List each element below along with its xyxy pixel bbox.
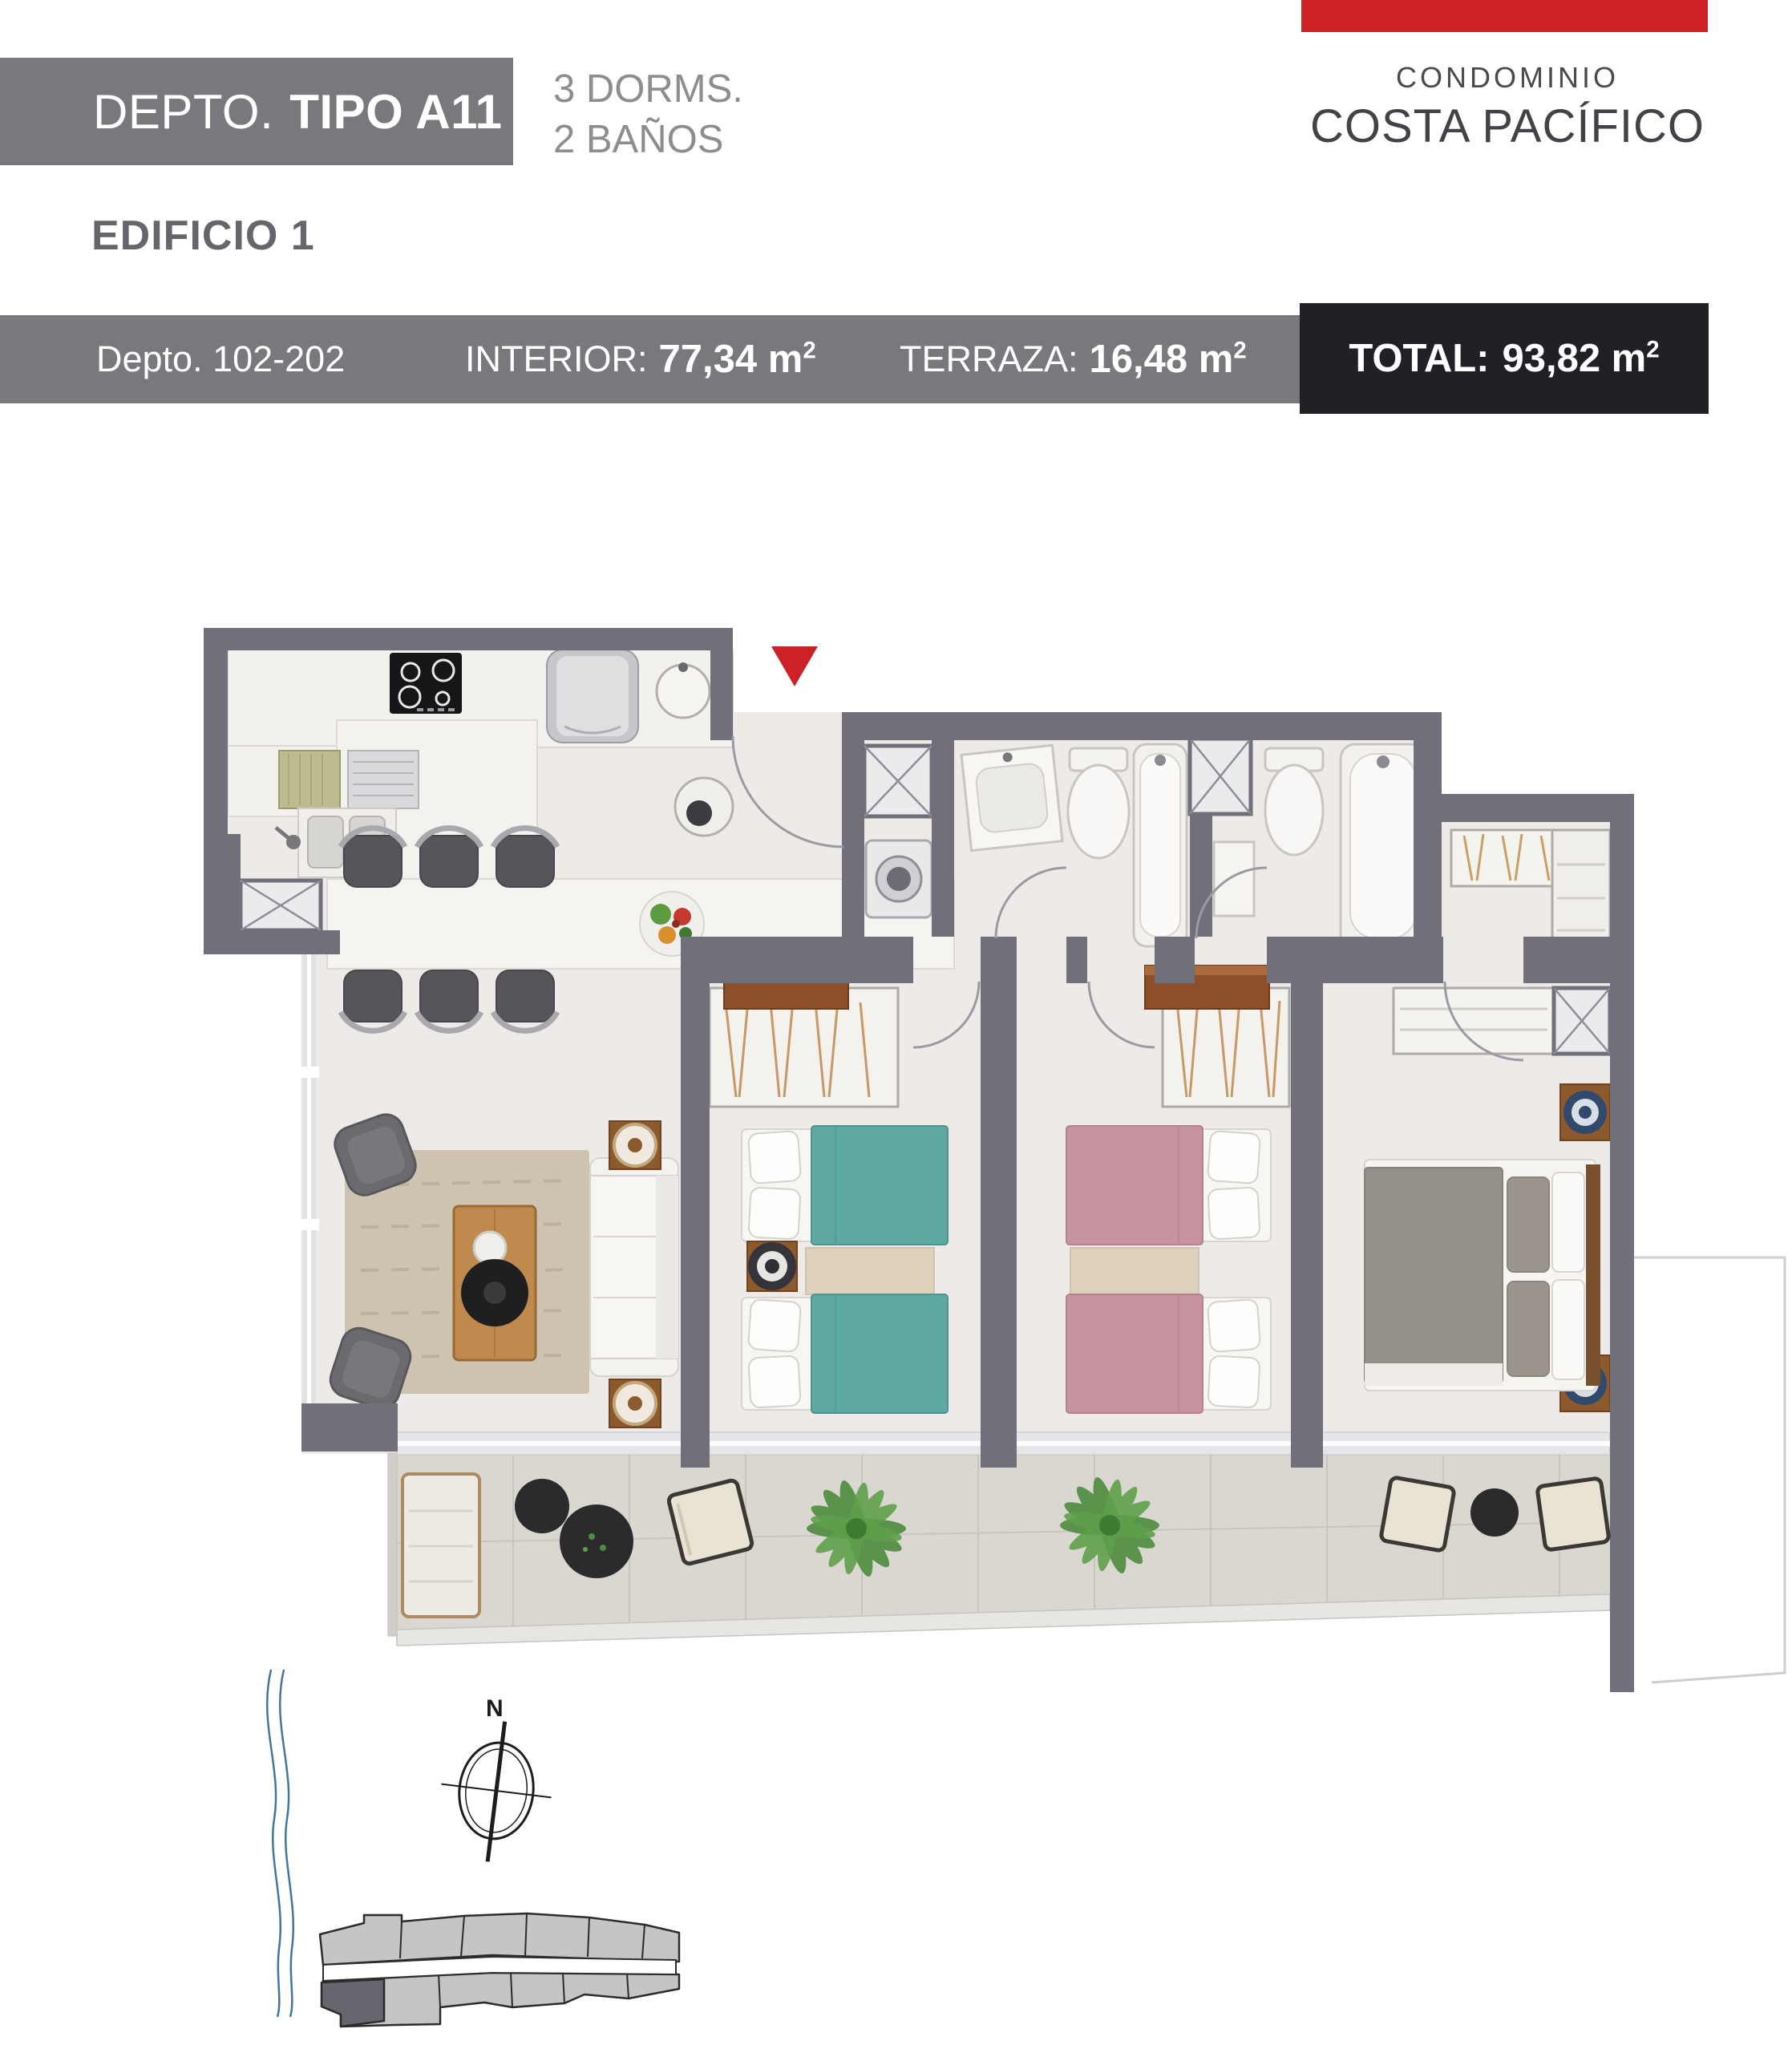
coastline-icon <box>267 1670 293 2017</box>
floor-plan: N <box>0 449 1792 2053</box>
compass-icon: N <box>433 1695 560 1869</box>
compass-north-label: N <box>486 1695 504 1722</box>
total-label: TOTAL: <box>1349 336 1489 381</box>
counter-items <box>279 751 419 808</box>
terrace-table <box>1470 1488 1519 1537</box>
bathtub-icon <box>1134 744 1187 946</box>
twin-bed-pink <box>1066 1126 1271 1245</box>
pouf <box>515 1479 569 1533</box>
bath-sink-icon <box>1214 842 1254 916</box>
coffee-table <box>454 1206 536 1360</box>
bath-sink-icon <box>961 745 1062 850</box>
round-side-table <box>747 1241 797 1291</box>
pouf <box>560 1504 633 1578</box>
project-name: CONDOMINIO COSTA PACÍFICO <box>1251 61 1764 153</box>
neighbor-outline <box>1634 1257 1785 1682</box>
double-bed <box>1365 1160 1600 1391</box>
interior-label: INTERIOR: <box>465 338 648 380</box>
unit-type-banner: DEPTO. TIPO A11 <box>0 58 513 165</box>
stove-icon <box>390 653 462 714</box>
unit-type-code: TIPO A11 <box>289 84 502 140</box>
baths-count: 2 BAÑOS <box>553 115 743 165</box>
bedside-runner <box>806 1248 934 1294</box>
unit-numbers: Depto. 102-202 <box>96 315 345 403</box>
terrace-chair <box>1537 1478 1609 1550</box>
bathtub-icon <box>1341 744 1426 948</box>
terrace-chair <box>1381 1477 1455 1552</box>
lounger <box>402 1474 479 1617</box>
project-name-line1: CONDOMINIO <box>1251 61 1764 95</box>
shaft-icon <box>241 881 321 930</box>
project-name-line2: COSTA PACÍFICO <box>1251 99 1764 153</box>
terrace-chair <box>668 1480 754 1565</box>
interior-area: INTERIOR: 77,34 m2 <box>465 315 816 403</box>
shaft-icon <box>1190 739 1251 814</box>
nightstand <box>1560 1084 1610 1140</box>
fridge-icon <box>547 650 638 743</box>
dorms-count: 3 DORMS. <box>553 64 743 115</box>
terraza-label: TERRAZA: <box>900 338 1078 380</box>
twin-bed-teal <box>742 1294 948 1413</box>
twin-bed-teal <box>742 1126 948 1245</box>
twin-bed-pink <box>1066 1294 1271 1413</box>
brochure-page: DEPTO. TIPO A11 3 DORMS. 2 BAÑOS EDIFICI… <box>0 0 1792 2053</box>
depto-label: DEPTO. <box>93 84 273 140</box>
shaft-icon <box>864 746 932 816</box>
toilet-icon <box>1068 748 1129 858</box>
shaft-icon <box>1554 988 1610 1054</box>
washing-machine-icon <box>866 840 932 917</box>
brand-red-bar <box>1301 0 1708 32</box>
key-plan-highlighted-unit <box>322 1979 384 2027</box>
sofa <box>590 1158 678 1376</box>
terrace-area: TERRAZA: 16,48 m2 <box>900 315 1247 403</box>
key-plan <box>320 1913 679 2027</box>
toilet-icon <box>1265 748 1323 855</box>
total-area-box: TOTAL: 93,82 m2 <box>1300 303 1709 414</box>
rooms-summary: 3 DORMS. 2 BAÑOS <box>553 64 743 164</box>
bedside-runner <box>1070 1248 1199 1294</box>
building-label: EDIFICIO 1 <box>91 212 315 260</box>
living-room <box>326 1110 678 1427</box>
